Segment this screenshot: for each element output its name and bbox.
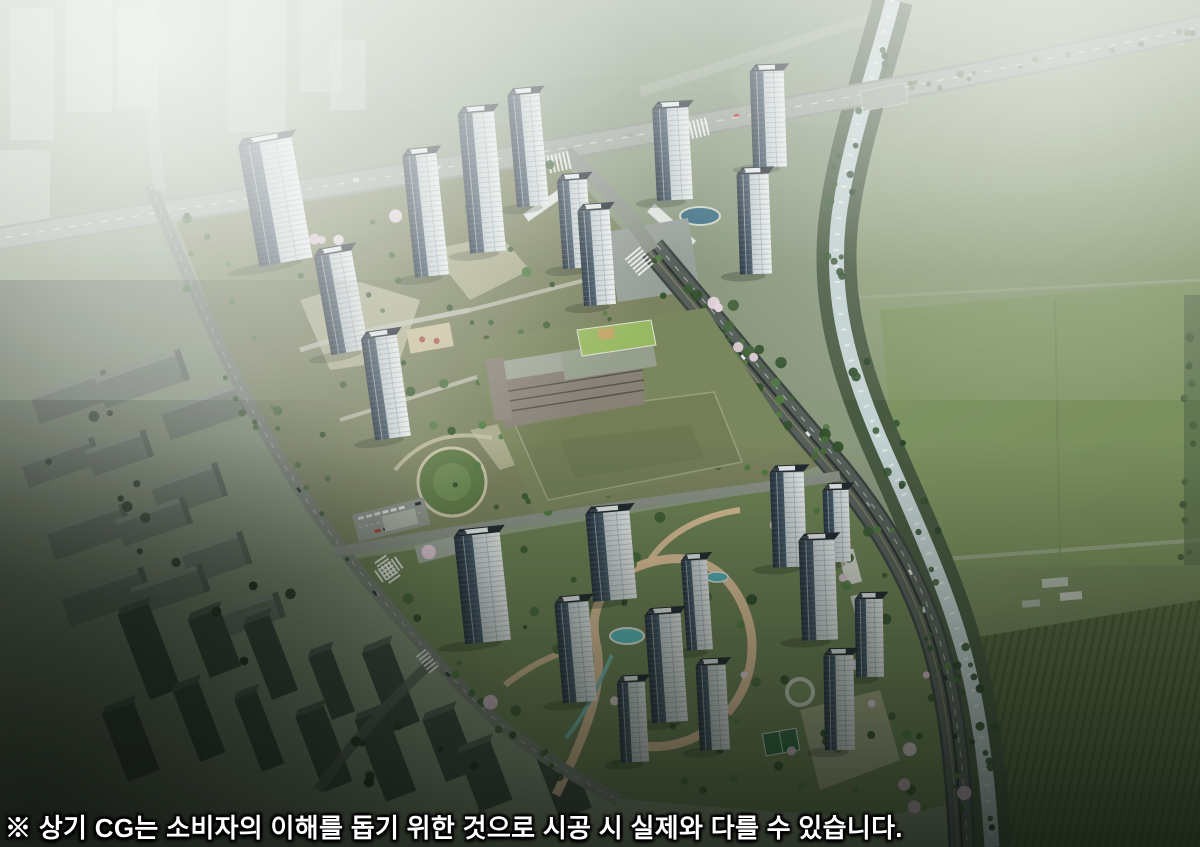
caption-disclaimer: ※ 상기 CG는 소비자의 이해를 돕기 위한 것으로 시공 시 실제와 다를 … (5, 808, 903, 845)
fog-overlays (0, 0, 1200, 847)
aerial-cg-rendering (0, 0, 1200, 847)
